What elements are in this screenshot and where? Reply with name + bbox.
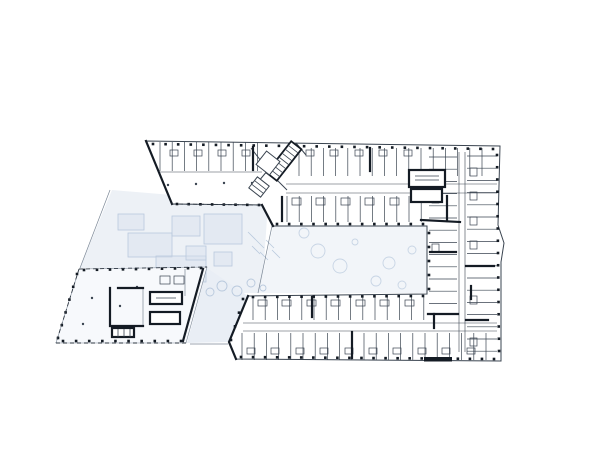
core-shaft xyxy=(409,170,445,187)
core-shaft xyxy=(112,328,134,337)
core-shaft xyxy=(150,312,180,324)
core-shaft xyxy=(411,189,442,202)
floor-plan-page xyxy=(0,0,600,450)
floor-plan-svg xyxy=(0,0,600,450)
